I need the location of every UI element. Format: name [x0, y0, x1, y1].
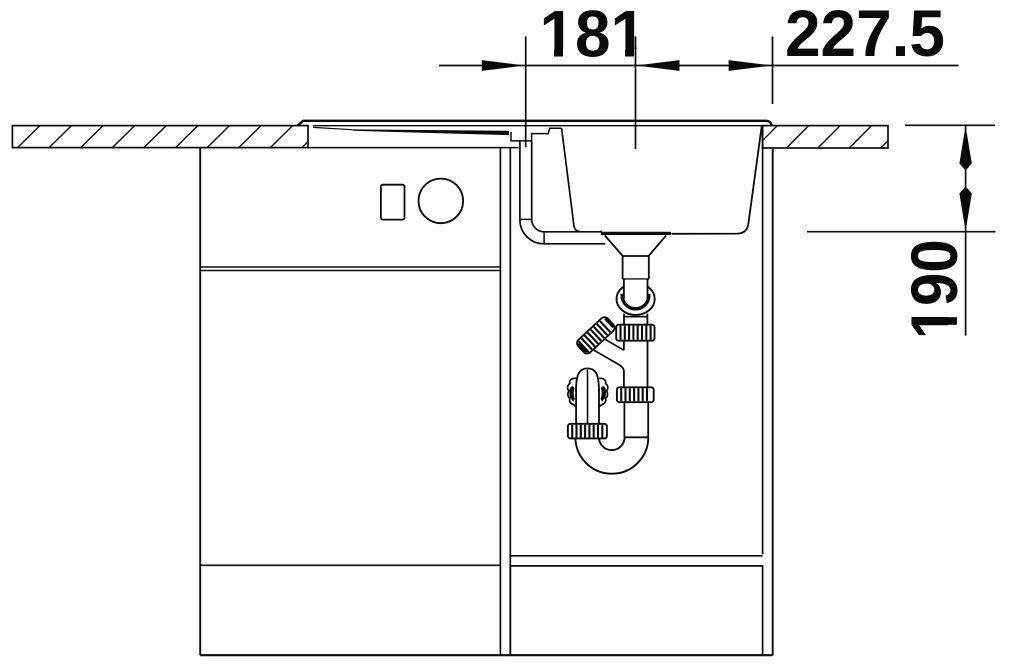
svg-text:181: 181 — [540, 0, 647, 71]
svg-text:227.5: 227.5 — [785, 0, 945, 70]
svg-text:190: 190 — [897, 239, 971, 339]
